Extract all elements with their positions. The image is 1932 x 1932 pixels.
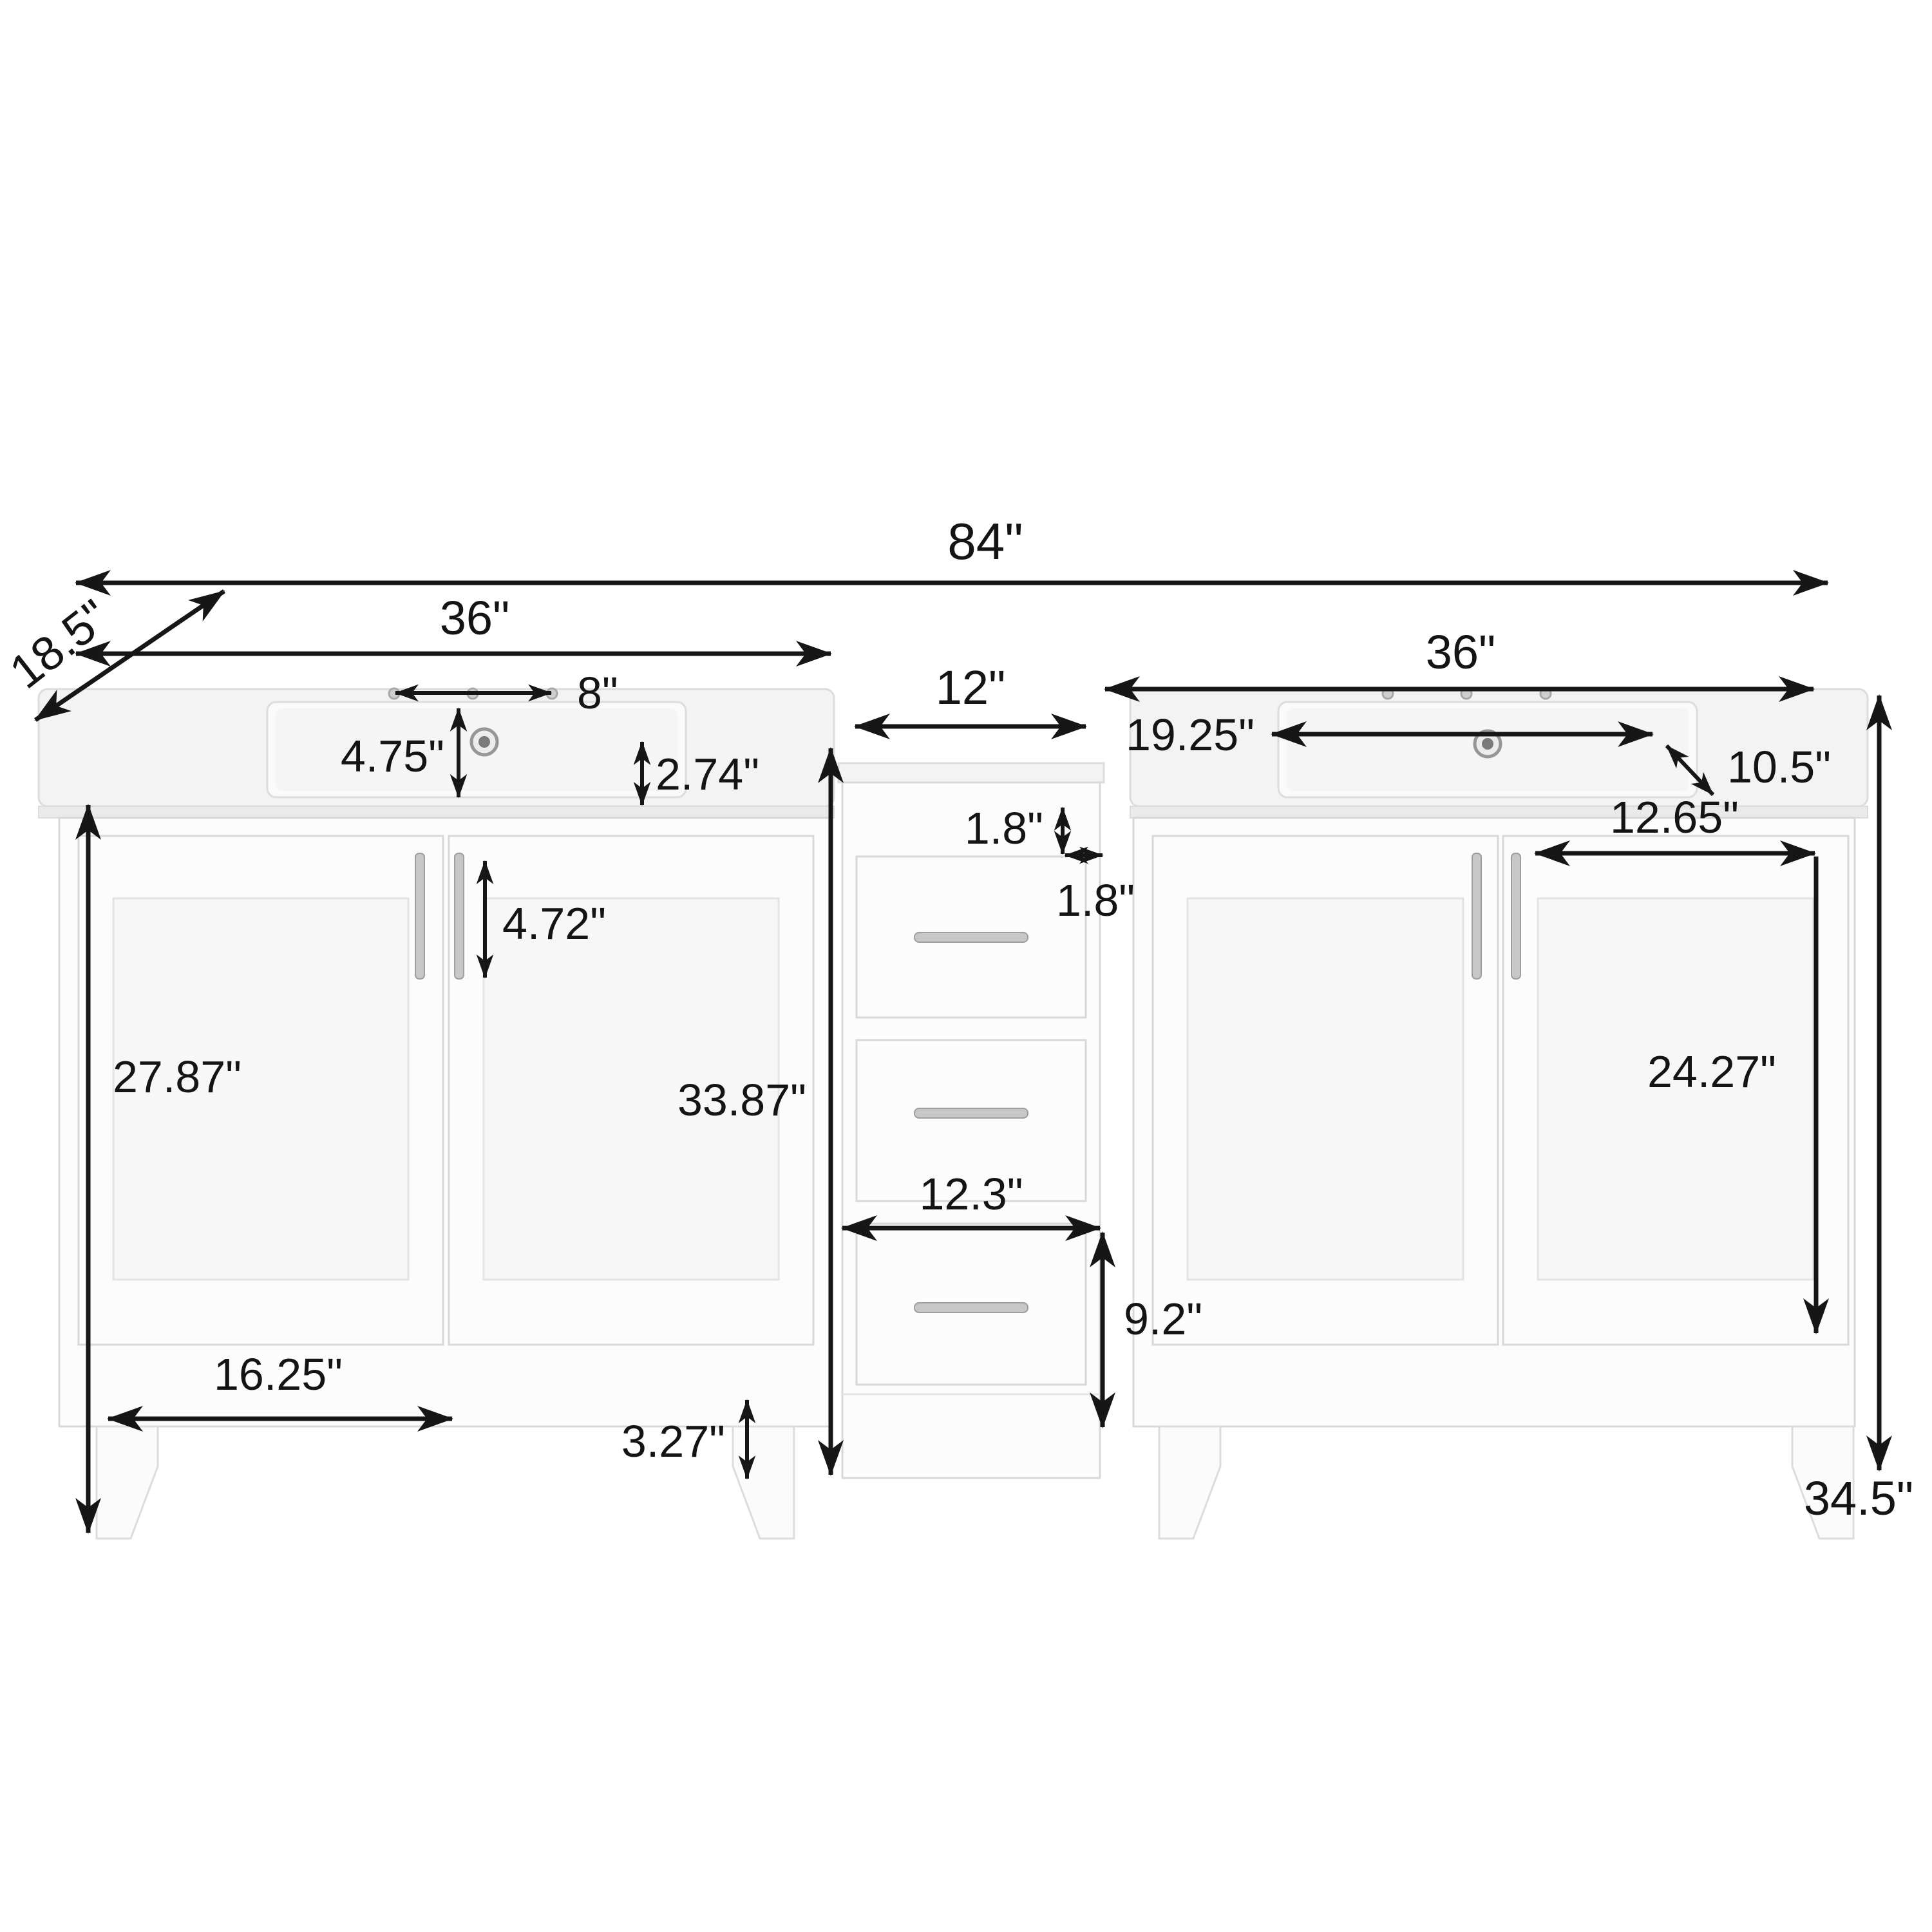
right-countertop-edge [1130, 806, 1868, 818]
left-door-1-handle [415, 853, 424, 979]
dim-label-faucet-spread: 8" [577, 668, 618, 718]
dim-label-right-door-width: 12.65" [1610, 792, 1739, 842]
dim-label-overall-width: 84" [947, 513, 1023, 570]
middle-cabinet-top [838, 763, 1104, 782]
dim-label-depth: 18.5" [0, 589, 119, 699]
left-vanity-left-leg [97, 1426, 158, 1539]
dim-label-left-door-panel-width: 16.25" [214, 1349, 343, 1399]
dim-label-middle-gap-vertical: 1.8" [965, 803, 1043, 853]
right-door-2-handle [1511, 853, 1520, 979]
vanity-dimension-diagram: 84" 18.5" 36" 12" 36" 19.25" 10.5" 8" 4.… [0, 0, 1932, 1932]
left-countertop-edge [39, 806, 834, 818]
right-vanity [1130, 688, 1868, 1539]
right-door-1-panel [1188, 898, 1463, 1280]
dim-label-middle-drawer-width: 12.3" [919, 1169, 1023, 1219]
dim-label-middle-cabinet-width: 12" [936, 661, 1006, 714]
right-door-1-handle [1472, 853, 1481, 979]
dim-label-middle-cabinet-height: 33.87" [677, 1075, 806, 1125]
right-vanity-left-leg [1159, 1426, 1220, 1539]
middle-drawer-2-handle [914, 1108, 1028, 1118]
dim-label-overall-height: 34.5" [1804, 1472, 1913, 1525]
dim-label-handle-length: 4.72" [502, 898, 606, 949]
dim-label-middle-gap-horizontal: 1.8" [1056, 875, 1135, 925]
dim-label-middle-lower-section: 9.2" [1124, 1294, 1202, 1344]
dim-label-left-door-height: 27.87" [113, 1052, 241, 1102]
dim-label-toe-kick-height: 3.27" [621, 1416, 725, 1466]
left-vanity-right-leg [733, 1426, 794, 1539]
dim-label-right-counter-offset: 19.25" [1126, 710, 1255, 760]
middle-drawer-3-handle [914, 1303, 1028, 1312]
left-door-2-handle [455, 853, 464, 979]
dim-label-sink-back-offset: 4.75" [341, 731, 444, 781]
right-overflow-hole-center [1482, 738, 1493, 750]
dim-label-right-basin-depth: 10.5" [1727, 742, 1831, 792]
dim-label-left-vanity-width: 36" [440, 591, 510, 645]
left-overflow-hole-center [478, 736, 490, 748]
dim-label-right-vanity-width: 36" [1426, 625, 1496, 679]
dim-label-counter-edge-height: 2.74" [656, 749, 759, 799]
middle-drawer-cabinet [838, 763, 1104, 1478]
middle-drawer-1-handle [914, 933, 1028, 942]
dim-label-right-door-height: 24.27" [1647, 1046, 1776, 1097]
diagram-canvas: 84" 18.5" 36" 12" 36" 19.25" 10.5" 8" 4.… [0, 0, 1932, 1932]
